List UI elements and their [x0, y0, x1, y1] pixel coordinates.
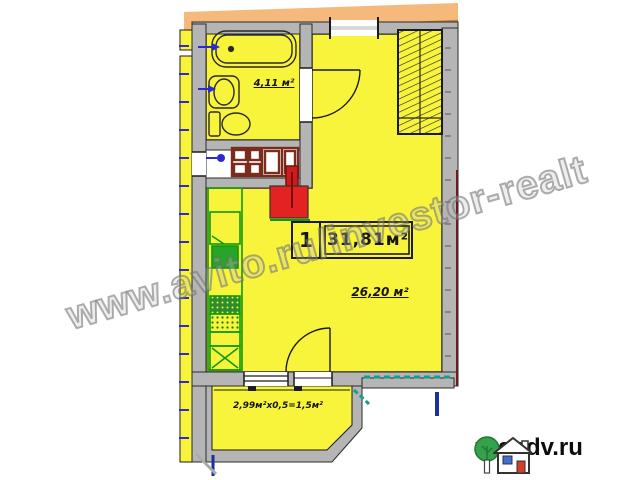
- logo-graphic: [474, 434, 532, 476]
- site-logo: rosndv.ru: [474, 434, 583, 462]
- neighbor-balcony-wall: [362, 378, 454, 388]
- wardrobe-hatch-icon: [398, 30, 442, 134]
- balcony: [204, 386, 362, 462]
- bathroom-area-label: 4,11 м²: [244, 78, 304, 89]
- page-background: 4,11 м² 1 31,81м² 26,20 м² 2,99м²х0,5=1,…: [0, 0, 640, 480]
- entry-door: [192, 152, 206, 176]
- balcony-formula-label: 2,99м²х0,5=1,5м²: [218, 401, 338, 411]
- room-area-label: 26,20 м²: [338, 285, 422, 299]
- house-icon: [494, 438, 532, 473]
- tree-icon: [475, 437, 499, 473]
